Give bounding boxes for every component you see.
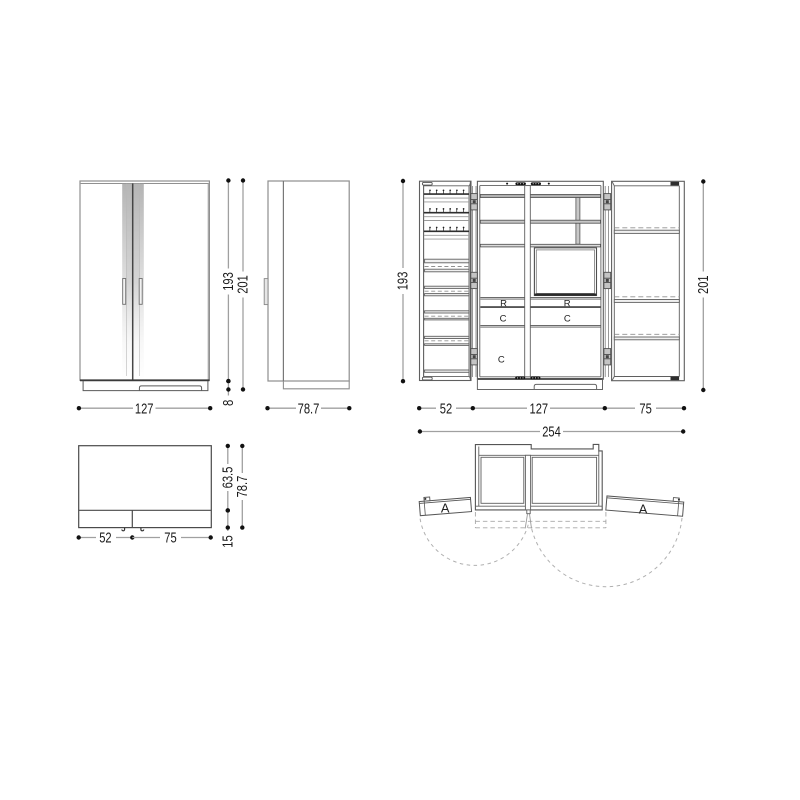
svg-text:C: C [500, 314, 507, 325]
svg-text:52: 52 [440, 400, 452, 417]
svg-text:A: A [441, 500, 450, 515]
svg-text:75: 75 [639, 400, 651, 417]
svg-text:R: R [564, 299, 571, 310]
svg-text:R: R [500, 298, 507, 309]
svg-text:C: C [564, 314, 571, 325]
svg-text:52: 52 [99, 530, 111, 547]
svg-text:75: 75 [164, 530, 176, 547]
svg-text:C: C [498, 354, 505, 365]
svg-text:127: 127 [135, 400, 154, 417]
svg-text:78.7: 78.7 [234, 476, 251, 498]
svg-text:254: 254 [542, 424, 561, 441]
svg-text:201: 201 [235, 275, 252, 294]
svg-text:127: 127 [530, 400, 549, 417]
svg-text:193: 193 [395, 272, 412, 291]
svg-text:78.7: 78.7 [298, 400, 320, 417]
svg-text:15: 15 [220, 535, 237, 547]
svg-text:201: 201 [695, 275, 712, 294]
svg-text:8: 8 [220, 400, 237, 406]
svg-text:A: A [639, 501, 648, 516]
